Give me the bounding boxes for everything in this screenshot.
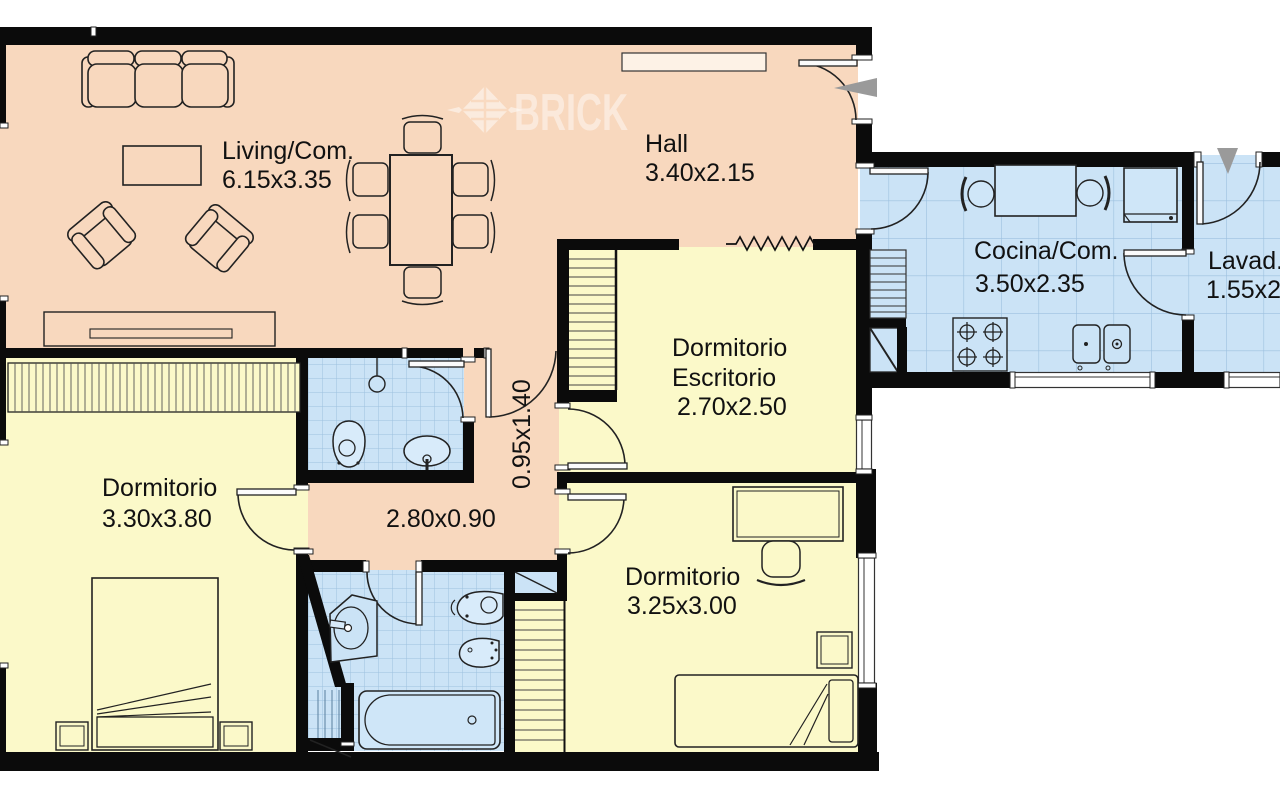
svg-text:2.70x2.50: 2.70x2.50: [677, 393, 787, 421]
svg-text:Cocina/Com.: Cocina/Com.: [974, 237, 1119, 265]
svg-text:3.25x3.00: 3.25x3.00: [627, 592, 737, 620]
svg-text:1.55x2.35: 1.55x2.35: [1206, 276, 1280, 304]
svg-text:Dormitorio: Dormitorio: [672, 334, 787, 362]
svg-text:Hall: Hall: [645, 130, 688, 158]
svg-text:BRICK: BRICK: [514, 84, 628, 142]
svg-text:0.95x1.40: 0.95x1.40: [508, 379, 536, 489]
svg-text:6.15x3.35: 6.15x3.35: [222, 166, 332, 194]
svg-text:Dormitorio: Dormitorio: [102, 474, 217, 502]
svg-text:Escritorio: Escritorio: [672, 364, 776, 392]
svg-text:2.80x0.90: 2.80x0.90: [386, 505, 496, 533]
svg-text:3.30x3.80: 3.30x3.80: [102, 505, 212, 533]
svg-text:3.50x2.35: 3.50x2.35: [975, 270, 1085, 298]
svg-text:Dormitorio: Dormitorio: [625, 563, 740, 591]
svg-text:Lavad.: Lavad.: [1208, 247, 1280, 275]
svg-text:Living/Com.: Living/Com.: [222, 137, 354, 165]
svg-text:3.40x2.15: 3.40x2.15: [645, 159, 755, 187]
